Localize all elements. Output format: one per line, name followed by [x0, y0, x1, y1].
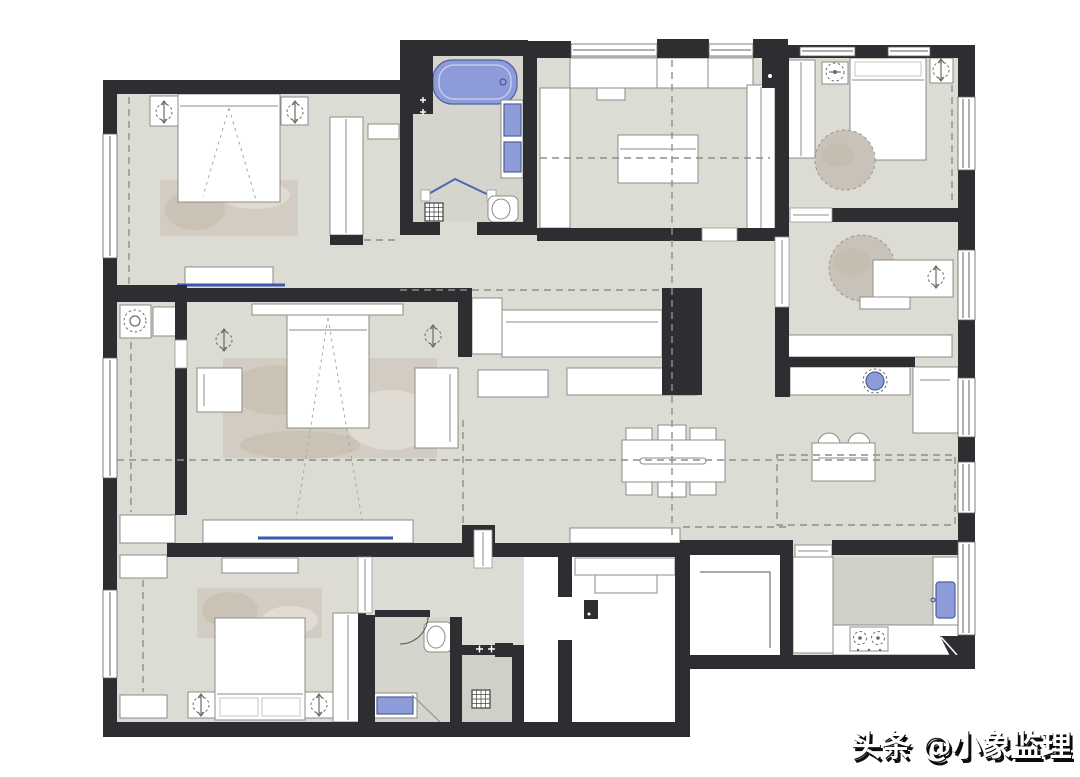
chair [690, 482, 716, 495]
chair [860, 297, 910, 309]
shower-room [472, 690, 490, 708]
hall-cabinet [502, 310, 662, 357]
low-cabinet [788, 335, 952, 357]
door [775, 237, 789, 307]
window [888, 47, 930, 56]
window [103, 358, 117, 478]
sink-icon [936, 582, 955, 618]
window [571, 44, 657, 56]
toilet-icon [488, 196, 518, 222]
floor-drain-icon [472, 690, 490, 708]
sink-icon [377, 697, 413, 714]
chair [626, 428, 652, 441]
watermark-text: 头条 @小象监理 [851, 721, 1076, 765]
washing-machine-icon [120, 305, 151, 338]
sink-icon [504, 104, 521, 136]
shelf [595, 575, 657, 593]
bed-icon [287, 315, 369, 428]
window [958, 97, 975, 170]
tv-console [185, 267, 273, 285]
sideboard [478, 370, 548, 397]
shoe-cabinet [570, 528, 680, 543]
shelf [368, 124, 399, 139]
tea-table [812, 443, 875, 481]
floor-drain-icon [425, 203, 443, 221]
stairwell-floor [690, 555, 780, 655]
wall-cabinet [570, 58, 657, 88]
door [790, 208, 832, 222]
bench [575, 558, 675, 575]
table-icon [618, 135, 698, 183]
window [958, 462, 975, 513]
desk-icon [873, 260, 953, 297]
wall-cabinet [708, 58, 753, 88]
window [103, 590, 117, 678]
stove-icon [850, 627, 888, 651]
toilet-icon [424, 622, 452, 652]
chair [597, 88, 625, 100]
bathtub-icon [433, 60, 517, 104]
window [800, 47, 855, 56]
hall-cabinet [472, 298, 502, 354]
dresser [415, 368, 458, 448]
chair [690, 428, 716, 441]
window [958, 542, 975, 635]
bed-icon [178, 94, 280, 202]
floor-plan-canvas: 头条 @小象监理 [0, 0, 1080, 777]
refrigerator-icon [913, 367, 958, 433]
dining-set [622, 425, 725, 497]
counter [793, 557, 833, 653]
door [702, 228, 737, 241]
door [175, 340, 187, 368]
counter [153, 307, 177, 336]
entry-door-icon [584, 600, 598, 619]
bar-counter [790, 367, 910, 395]
window [958, 378, 975, 437]
window [709, 44, 753, 56]
sink-icon [504, 142, 521, 172]
window [103, 134, 117, 258]
door [474, 530, 492, 568]
door [358, 557, 372, 613]
dining-table-icon [622, 440, 725, 482]
top-cabinet [222, 558, 298, 573]
chair [626, 482, 652, 495]
tv-console [203, 520, 413, 543]
window [958, 250, 975, 320]
wall-cabinet [657, 58, 708, 88]
storage-cabinet [120, 515, 175, 543]
floor-plan-drawing [0, 0, 1080, 777]
headboard [252, 304, 403, 315]
